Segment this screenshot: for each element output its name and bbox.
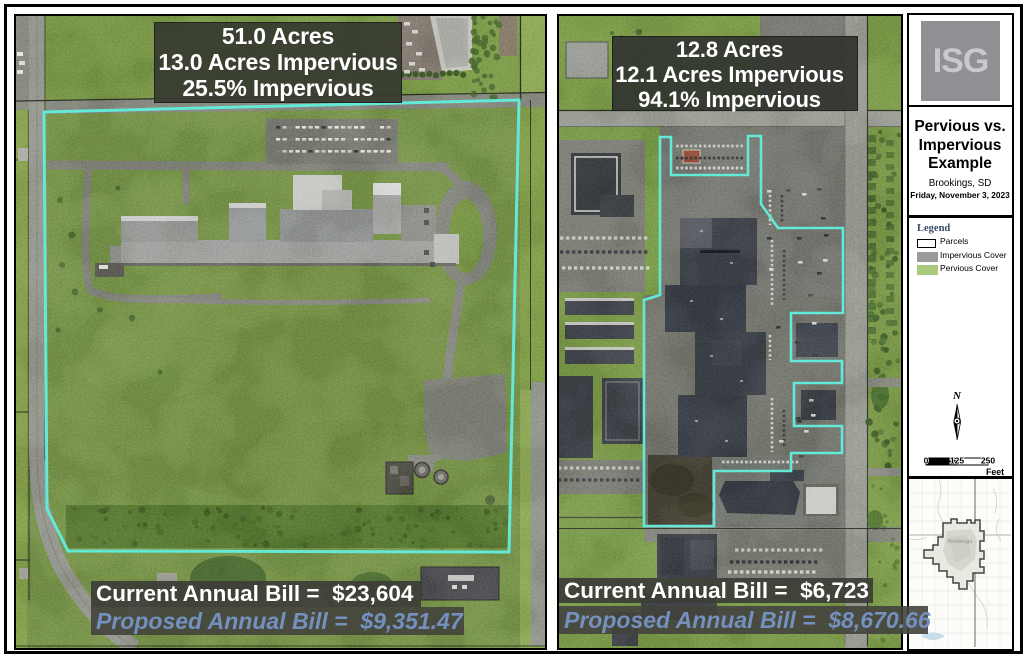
- svg-text:250: 250: [981, 456, 995, 466]
- svg-text:Brookings: Brookings: [948, 539, 973, 545]
- svg-text:N: N: [952, 390, 962, 402]
- svg-text:0: 0: [924, 456, 929, 466]
- svg-text:125: 125: [950, 456, 964, 466]
